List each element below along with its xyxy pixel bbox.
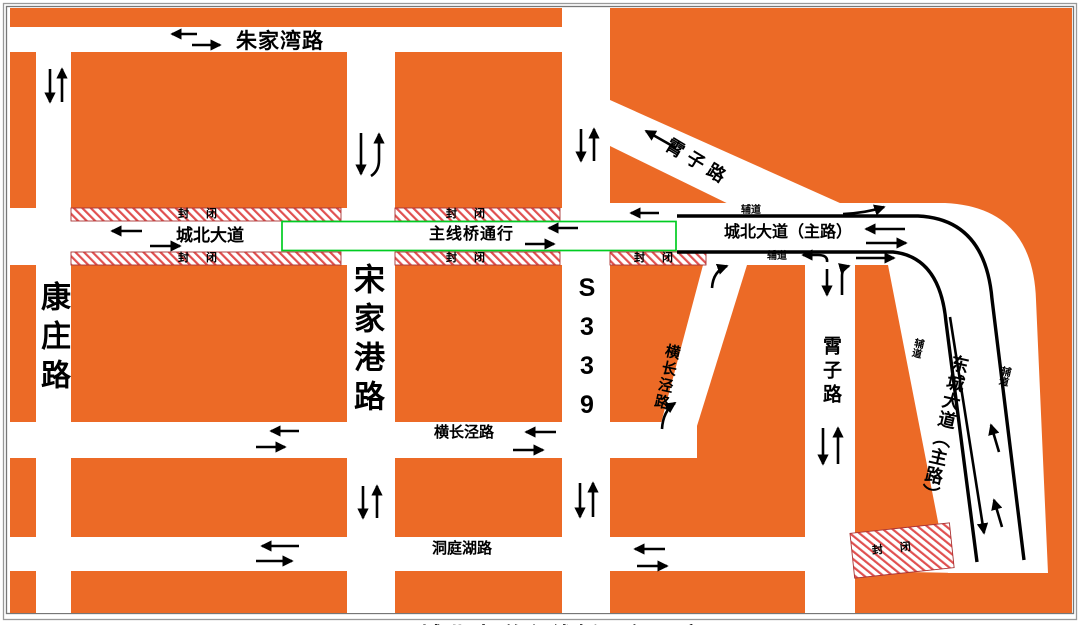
label-kangzhuang-road: 康庄路 [37,281,67,398]
label-fudao-north: 辅道 [741,206,761,216]
label-mainline-bridge-open: 主线桥通行 [429,227,514,243]
road-closure-diagram: 朱家湾路 康庄路 宋家港路 S339 城北大道 主线桥通行 城北大道（主路） 霄… [0,0,1080,625]
label-zhujiawan-road: 朱家湾路 [236,31,324,52]
label-xiaozi-road-lower: 霄子路 [821,336,840,408]
caption-clipped: 城北大道主线桥通行示意图 [420,617,750,625]
label-songjiagang-road: 宋家港路 [351,263,382,419]
label-closed: 封 闭 [446,209,485,220]
label-closed: 封 闭 [178,253,217,264]
label-closed: 封 闭 [446,253,485,264]
label-s339-road: S339 [574,274,599,430]
label-fudao-south: 辅道 [767,252,787,262]
label-chengbei-avenue-main: 城北大道（主路） [724,225,852,241]
label-chengbei-avenue: 城北大道 [176,227,244,244]
map-canvas [0,0,1080,625]
label-closed: 封 闭 [178,209,217,220]
label-dongtinghu-road: 洞庭湖路 [432,541,492,556]
label-hengchangjing-road: 横长泾路 [434,425,494,440]
label-closed: 封 闭 [634,253,673,264]
